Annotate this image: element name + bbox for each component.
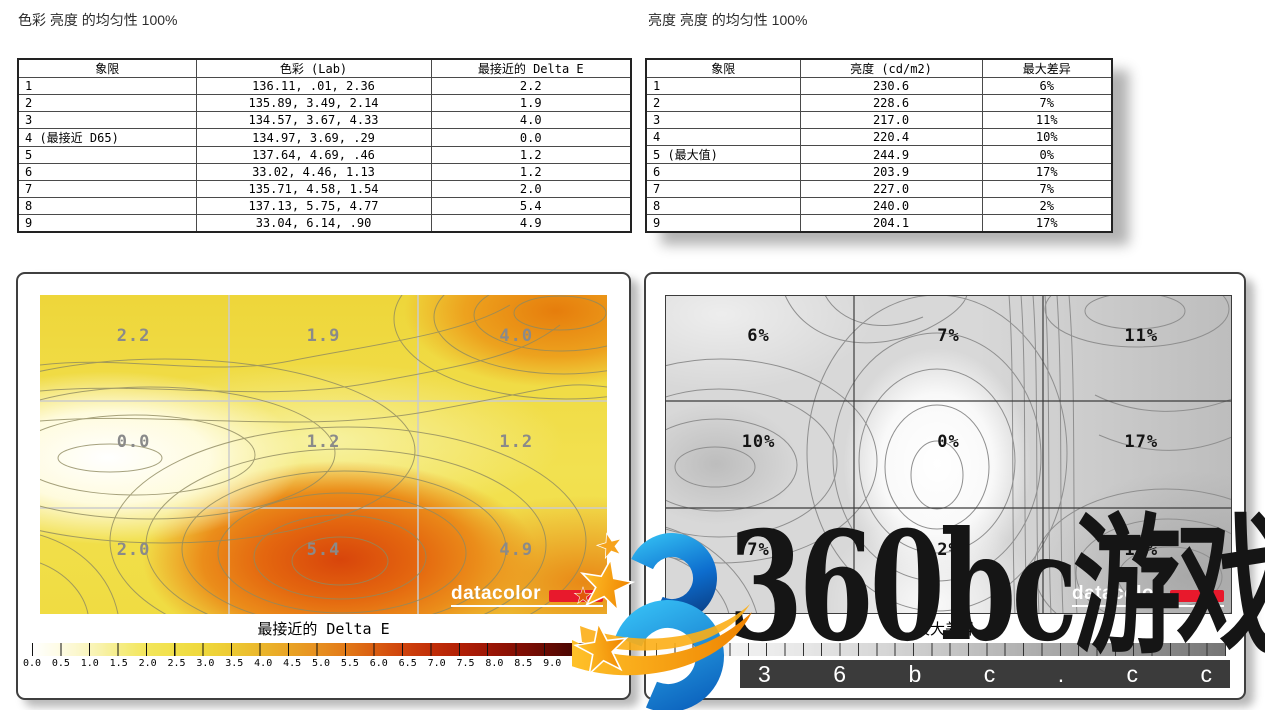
quadrant-value-label: 2.2 [117, 326, 151, 346]
quadrant-value-label: 4.9 [499, 540, 533, 560]
table-row: 3134.57, 3.67, 4.334.0 [18, 112, 631, 129]
luminance-table: 象限 亮度 (cd/m2) 最大差异 1230.66% 2228.67% 321… [645, 58, 1113, 233]
col-header-delta-e: 最接近的 Delta E [431, 59, 631, 78]
quadrant-value-label: 4.0 [499, 326, 533, 346]
table-row: 5137.64, 4.69, .461.2 [18, 147, 631, 164]
table-row: 7135.71, 4.58, 1.542.0 [18, 181, 631, 198]
table-header-row: 象限 亮度 (cd/m2) 最大差异 [646, 59, 1112, 78]
col-header-lab: 色彩 (Lab) [196, 59, 431, 78]
colorbar-tick-labels: 0.0 0.5 1.0 1.5 2.0 2.5 3.0 3.5 4.0 4.5 … [32, 658, 610, 670]
table-row: 3217.011% [646, 112, 1112, 129]
table-row: 8240.02% [646, 198, 1112, 215]
col-header-luminance: 亮度 (cd/m2) [800, 59, 982, 78]
color-uniformity-title: 色彩 亮度 的均匀性 100% [18, 10, 177, 30]
table-row: 5 (最大值)244.90% [646, 146, 1112, 164]
table-row: 2135.89, 3.49, 2.141.9 [18, 95, 631, 112]
blue-b-shape [614, 534, 722, 710]
watermark-b-logo [572, 518, 758, 710]
table-row: 9204.117% [646, 215, 1112, 233]
luminance-uniformity-title: 亮度 亮度 的均匀性 100% [648, 10, 807, 30]
col-header-quadrant: 象限 [646, 59, 800, 78]
table-row: 4 (最接近 D65)134.97, 3.69, .290.0 [18, 129, 631, 147]
datacolor-wordmark: datacolor [451, 586, 541, 602]
table-header-row: 象限 色彩 (Lab) 最接近的 Delta E [18, 59, 631, 78]
col-header-max-diff: 最大差异 [982, 59, 1112, 78]
quadrant-value-label: 0% [937, 432, 959, 452]
table-row: 6203.917% [646, 164, 1112, 181]
table-row: 1136.11, .01, 2.362.2 [18, 78, 631, 95]
colorbar-ticks [32, 643, 602, 656]
watermark-big-text: 360bc游戏 [728, 512, 1265, 662]
delta-e-contour-panel: 2.2 1.9 4.0 0.0 1.2 1.2 2.0 5.4 4.9 data… [16, 272, 631, 700]
table-row: 2228.67% [646, 95, 1112, 112]
table-row: 6 33.02, 4.46, 1.131.2 [18, 164, 631, 181]
quadrant-value-label: 10% [742, 432, 776, 452]
quadrant-value-label: 17% [1124, 432, 1158, 452]
quadrant-value-label: 1.9 [307, 326, 341, 346]
quadrant-value-label: 11% [1124, 326, 1158, 346]
col-header-quadrant: 象限 [18, 59, 196, 78]
uniformity-report-page: { "left_report": { "title": "色彩 亮度 的均匀性 … [0, 0, 1265, 710]
table-row: 4220.410% [646, 129, 1112, 146]
color-lab-table: 象限 色彩 (Lab) 最接近的 Delta E 1136.11, .01, 2… [17, 58, 632, 233]
quadrant-value-label: 5.4 [307, 540, 341, 560]
table-row: 7227.07% [646, 181, 1112, 198]
quadrant-value-label: 0.0 [117, 432, 151, 452]
colorbar-caption: 最接近的 Delta E [18, 618, 629, 639]
delta-e-colorbar [32, 643, 602, 656]
quadrant-value-label: 1.2 [307, 432, 341, 452]
table-row: 9 33.04, 6.14, .904.9 [18, 215, 631, 233]
delta-e-contour-map: 2.2 1.9 4.0 0.0 1.2 1.2 2.0 5.4 4.9 [40, 295, 607, 614]
table-row: 8137.13, 5.75, 4.775.4 [18, 198, 631, 215]
table-row: 1230.66% [646, 78, 1112, 95]
quadrant-value-label: 1.2 [499, 432, 533, 452]
quadrant-value-label: 2.0 [117, 540, 151, 560]
quadrant-value-label: 7% [937, 326, 959, 346]
quadrant-value-label: 6% [747, 326, 769, 346]
